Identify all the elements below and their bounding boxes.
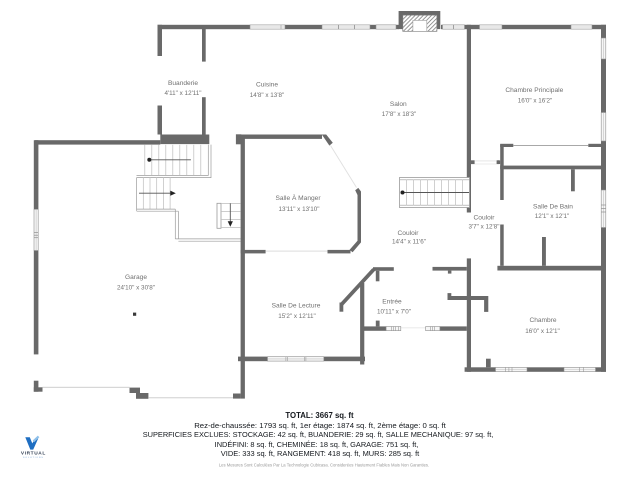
svg-text:Cuisine: Cuisine	[256, 82, 278, 89]
svg-text:VIDE: 333 sq. ft, RANGEMENT: 4: VIDE: 333 sq. ft, RANGEMENT: 418 sq. ft,…	[221, 449, 420, 458]
svg-text:Chambre: Chambre	[529, 317, 556, 324]
svg-text:VIRTUAL: VIRTUAL	[21, 451, 46, 457]
svg-text:10'11" x 7'0": 10'11" x 7'0"	[377, 308, 411, 315]
svg-text:13'11" x 13'10": 13'11" x 13'10"	[278, 206, 319, 213]
svg-text:SOLUTIONS: SOLUTIONS	[23, 457, 44, 459]
svg-text:16'0" x 12'1": 16'0" x 12'1"	[525, 328, 560, 335]
svg-text:SUPERFICIES EXCLUES: STOCKAGE:: SUPERFICIES EXCLUES: STOCKAGE: 42 sq. ft…	[143, 430, 494, 439]
svg-text:Garage: Garage	[125, 274, 147, 281]
svg-text:24'10" x 30'8": 24'10" x 30'8"	[117, 285, 155, 292]
svg-text:Salon: Salon	[390, 101, 407, 108]
svg-text:12'1" x 12'1": 12'1" x 12'1"	[535, 213, 570, 220]
svg-text:Couloir: Couloir	[474, 214, 496, 221]
svg-text:Couloir: Couloir	[398, 230, 420, 237]
svg-text:3'7" x 12'8": 3'7" x 12'8"	[468, 224, 499, 231]
svg-text:17'8" x 18'3": 17'8" x 18'3"	[382, 111, 417, 118]
svg-text:15'2" x 12'11": 15'2" x 12'11"	[278, 313, 316, 320]
svg-text:Buanderie: Buanderie	[168, 80, 198, 87]
svg-text:Salle À Manger: Salle À Manger	[275, 193, 321, 202]
svg-text:Salle De Bain: Salle De Bain	[533, 203, 573, 210]
svg-text:14'4" x 11'6": 14'4" x 11'6"	[392, 239, 426, 246]
svg-text:INDÉFINI: 8 sq. ft, CHEMINÉE:: INDÉFINI: 8 sq. ft, CHEMINÉE: 18 sq. ft,…	[215, 440, 419, 449]
svg-text:4'11" x 12'11": 4'11" x 12'11"	[164, 90, 201, 97]
svg-text:TOTAL: 3667 sq. ft: TOTAL: 3667 sq. ft	[285, 411, 354, 420]
svg-text:Entrée: Entrée	[382, 299, 402, 306]
svg-text:Les Mesures Sont Calculées Par: Les Mesures Sont Calculées Par La Techno…	[219, 463, 429, 468]
svg-text:Rez-de-chaussée: 1793 sq. ft,: Rez-de-chaussée: 1793 sq. ft, 1er étage:…	[194, 421, 446, 430]
svg-text:14'8" x 13'8": 14'8" x 13'8"	[250, 92, 285, 99]
svg-text:Chambre Principale: Chambre Principale	[505, 87, 563, 94]
svg-text:Salle De Lecture: Salle De Lecture	[272, 302, 321, 309]
svg-text:16'0" x 16'2": 16'0" x 16'2"	[518, 98, 553, 105]
